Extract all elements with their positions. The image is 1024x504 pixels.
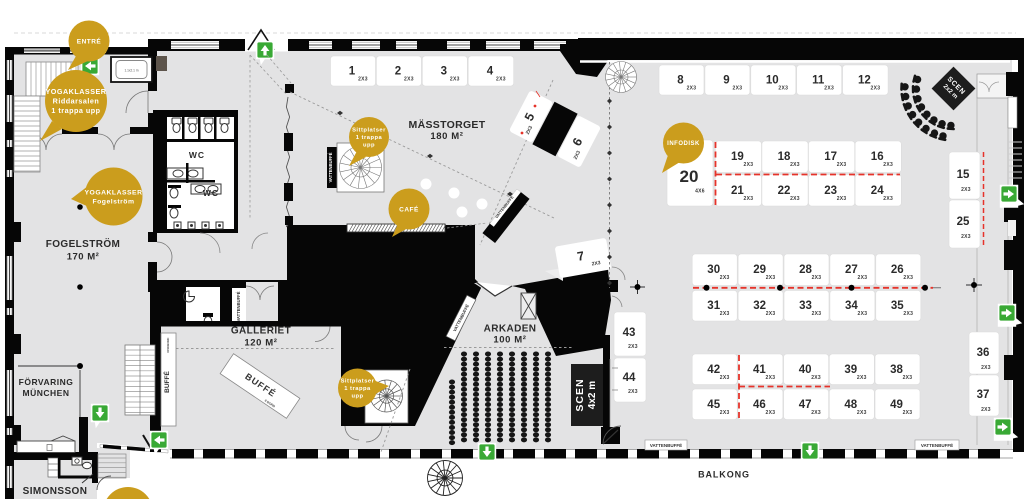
svg-text:Sittplatser: Sittplatser: [352, 128, 386, 134]
svg-text:MÜNCHEN: MÜNCHEN: [23, 388, 70, 398]
svg-text:40: 40: [799, 364, 812, 376]
svg-text:3: 3: [441, 66, 447, 78]
svg-text:upp: upp: [351, 394, 363, 400]
svg-text:25: 25: [957, 216, 970, 228]
svg-text:BALKONG: BALKONG: [698, 470, 750, 480]
svg-text:48: 48: [844, 399, 857, 411]
svg-text:INFODISK: INFODISK: [667, 141, 700, 147]
svg-text:100 M²: 100 M²: [493, 335, 526, 346]
svg-text:170 M²: 170 M²: [67, 252, 100, 263]
svg-text:SCEN: SCEN: [574, 378, 586, 411]
svg-text:VATTENBUFFÉ: VATTENBUFFÉ: [236, 291, 241, 321]
svg-text:1 trappa upp: 1 trappa upp: [51, 106, 100, 115]
svg-text:21: 21: [731, 185, 744, 197]
svg-text:Sittplatser: Sittplatser: [341, 379, 375, 385]
svg-text:2: 2: [395, 66, 401, 78]
svg-text:2X3: 2X3: [687, 86, 697, 92]
svg-text:4: 4: [487, 66, 494, 78]
svg-text:2X3: 2X3: [628, 389, 638, 395]
svg-text:2X3: 2X3: [496, 77, 506, 83]
svg-text:2X3: 2X3: [766, 410, 776, 416]
svg-text:2X3: 2X3: [766, 311, 776, 317]
svg-text:2X3: 2X3: [766, 275, 776, 281]
svg-text:36: 36: [977, 347, 990, 359]
svg-text:1 trappa: 1 trappa: [344, 386, 371, 392]
svg-text:DISKBORD: DISKBORD: [166, 338, 170, 353]
svg-text:1: 1: [349, 66, 356, 78]
svg-text:2X3: 2X3: [837, 162, 847, 168]
svg-text:SIMONSSON: SIMONSSON: [23, 486, 88, 497]
svg-text:24: 24: [871, 185, 884, 197]
svg-text:46: 46: [753, 399, 766, 411]
svg-text:41: 41: [753, 364, 766, 376]
svg-text:23: 23: [824, 185, 837, 197]
svg-text:42: 42: [707, 364, 720, 376]
svg-text:2X3: 2X3: [981, 365, 991, 371]
svg-text:2X3: 2X3: [883, 162, 893, 168]
svg-text:2X3: 2X3: [766, 375, 776, 381]
svg-text:ENTRÉ: ENTRÉ: [77, 36, 102, 45]
svg-text:15: 15: [957, 169, 970, 181]
svg-text:8: 8: [677, 75, 684, 87]
svg-text:33: 33: [799, 300, 812, 312]
svg-text:180 M²: 180 M²: [430, 131, 463, 142]
svg-text:VATTENBUFFÉ: VATTENBUFFÉ: [328, 152, 333, 182]
svg-text:2X3: 2X3: [811, 375, 821, 381]
svg-text:34: 34: [845, 300, 858, 312]
svg-text:19: 19: [731, 151, 744, 163]
svg-text:4x2 m: 4x2 m: [587, 381, 598, 409]
svg-text:2X3: 2X3: [812, 275, 822, 281]
svg-text:GALLERIET: GALLERIET: [231, 326, 291, 337]
svg-text:2X3: 2X3: [871, 86, 881, 92]
svg-text:35: 35: [891, 300, 904, 312]
svg-text:2X3: 2X3: [961, 187, 971, 193]
svg-text:ARKADEN: ARKADEN: [484, 324, 537, 335]
svg-text:2X3: 2X3: [720, 275, 730, 281]
svg-text:1.1x2.1 m: 1.1x2.1 m: [125, 69, 139, 73]
svg-text:32: 32: [753, 300, 766, 312]
svg-text:2X3: 2X3: [883, 196, 893, 202]
svg-text:2X3: 2X3: [744, 196, 754, 202]
svg-text:2X3: 2X3: [720, 410, 730, 416]
svg-text:2X3: 2X3: [857, 410, 867, 416]
svg-text:FÖRVARING: FÖRVARING: [19, 377, 74, 387]
svg-text:2X3: 2X3: [811, 410, 821, 416]
svg-text:WC: WC: [203, 188, 219, 198]
svg-text:2X3: 2X3: [628, 344, 638, 350]
svg-text:2X3: 2X3: [358, 77, 368, 83]
svg-text:VATTENBUFFÉ: VATTENBUFFÉ: [650, 441, 682, 448]
svg-text:22: 22: [778, 185, 791, 197]
svg-text:29: 29: [753, 264, 766, 276]
svg-text:2X3: 2X3: [720, 311, 730, 317]
svg-text:12: 12: [858, 75, 871, 87]
svg-text:18: 18: [778, 151, 791, 163]
svg-text:1 trappa: 1 trappa: [356, 135, 383, 141]
svg-text:2X3: 2X3: [858, 275, 868, 281]
svg-text:YOGAKLASSER: YOGAKLASSER: [85, 189, 143, 196]
svg-text:45: 45: [707, 399, 720, 411]
svg-text:2X3: 2X3: [790, 196, 800, 202]
svg-text:28: 28: [799, 264, 812, 276]
svg-text:2X3: 2X3: [404, 77, 414, 83]
svg-text:WC: WC: [189, 150, 205, 160]
svg-text:2X3: 2X3: [903, 375, 913, 381]
svg-text:49: 49: [890, 399, 903, 411]
svg-text:2X3: 2X3: [857, 375, 867, 381]
svg-text:37: 37: [977, 389, 990, 401]
svg-text:47: 47: [799, 399, 812, 411]
svg-text:FOGELSTRÖM: FOGELSTRÖM: [46, 237, 121, 250]
svg-text:44: 44: [623, 372, 636, 384]
svg-text:upp: upp: [363, 143, 375, 149]
svg-text:2X3: 2X3: [812, 311, 822, 317]
svg-text:4X6: 4X6: [695, 189, 705, 195]
svg-text:16: 16: [871, 151, 884, 163]
svg-text:30: 30: [707, 264, 720, 276]
svg-text:MÄSSTORGET: MÄSSTORGET: [409, 118, 486, 131]
svg-text:39: 39: [844, 364, 857, 376]
svg-text:2X3: 2X3: [744, 162, 754, 168]
svg-text:VATTENBUFFÉ: VATTENBUFFÉ: [921, 441, 953, 448]
svg-text:26: 26: [891, 264, 904, 276]
svg-text:CAFÉ: CAFÉ: [399, 204, 419, 213]
svg-text:2X3: 2X3: [837, 196, 847, 202]
svg-text:2X3: 2X3: [858, 311, 868, 317]
svg-text:43: 43: [623, 327, 636, 339]
svg-text:Fogelström: Fogelström: [92, 198, 134, 205]
svg-text:2X3: 2X3: [903, 311, 913, 317]
svg-text:27: 27: [845, 264, 858, 276]
svg-text:2X3: 2X3: [450, 77, 460, 83]
svg-text:2X3: 2X3: [824, 86, 834, 92]
svg-text:2X3: 2X3: [733, 86, 743, 92]
svg-text:120 M²: 120 M²: [244, 338, 277, 349]
svg-text:38: 38: [890, 364, 903, 376]
svg-text:YOGAKLASSER: YOGAKLASSER: [45, 87, 106, 96]
svg-text:Riddarsalen: Riddarsalen: [53, 97, 100, 106]
svg-text:2X3: 2X3: [903, 275, 913, 281]
svg-text:2X3: 2X3: [778, 86, 788, 92]
svg-text:BUFFÉ: BUFFÉ: [162, 371, 171, 393]
svg-text:9: 9: [723, 75, 729, 87]
svg-text:31: 31: [707, 300, 720, 312]
svg-text:2X3: 2X3: [790, 162, 800, 168]
svg-text:10: 10: [766, 75, 779, 87]
svg-text:17: 17: [824, 151, 837, 163]
svg-text:2X3: 2X3: [981, 407, 991, 413]
svg-text:20: 20: [680, 167, 699, 186]
svg-text:11: 11: [812, 75, 825, 87]
svg-text:2X3: 2X3: [720, 375, 730, 381]
svg-text:2X3: 2X3: [961, 234, 971, 240]
svg-text:2X3: 2X3: [903, 410, 913, 416]
